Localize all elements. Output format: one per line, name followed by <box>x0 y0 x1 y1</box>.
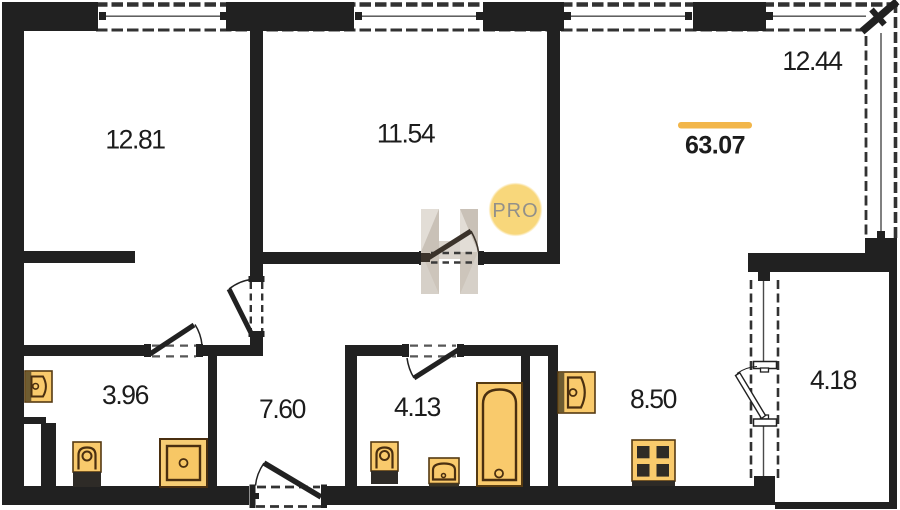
svg-text:3.96: 3.96 <box>102 380 149 410</box>
svg-text:8.50: 8.50 <box>630 384 677 414</box>
svg-text:7.60: 7.60 <box>259 394 306 424</box>
svg-text:4.13: 4.13 <box>394 392 441 422</box>
svg-text:63.07: 63.07 <box>685 132 745 160</box>
svg-text:4.18: 4.18 <box>810 365 857 395</box>
svg-text:12.44: 12.44 <box>782 46 842 76</box>
svg-text:12.81: 12.81 <box>105 125 165 155</box>
svg-text:PRO: PRO <box>492 200 538 222</box>
svg-text:11.54: 11.54 <box>377 119 435 149</box>
